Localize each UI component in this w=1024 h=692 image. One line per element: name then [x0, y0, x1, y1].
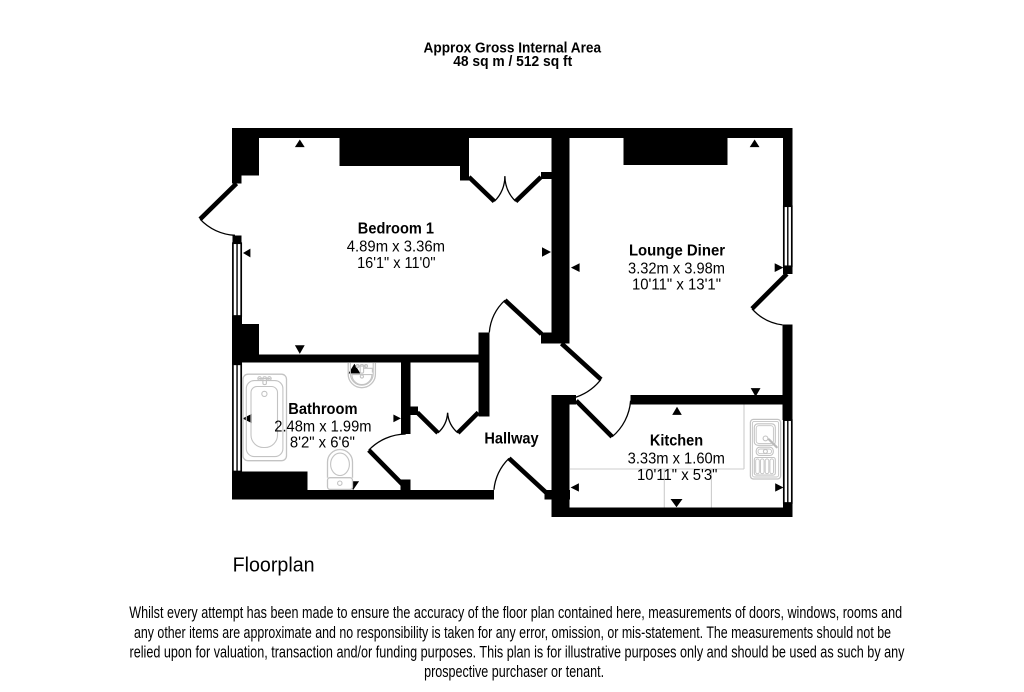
svg-text:Bedroom 1: Bedroom 1: [358, 220, 435, 237]
svg-text:prospective purchaser or tenan: prospective purchaser or tenant.: [424, 663, 604, 681]
svg-text:Floorplan: Floorplan: [233, 554, 315, 577]
svg-text:2.48m x 1.99m: 2.48m x 1.99m: [274, 418, 371, 435]
svg-text:any other items are approximat: any other items are approximate and no r…: [134, 624, 891, 642]
svg-text:relied upon for valuation, tra: relied upon for valuation, transaction a…: [130, 644, 906, 662]
svg-text:10'11" x 13'1": 10'11" x 13'1": [632, 277, 721, 294]
svg-text:16'1" x 11'0": 16'1" x 11'0": [357, 255, 435, 272]
svg-text:Lounge Diner: Lounge Diner: [629, 243, 725, 260]
svg-text:4.89m x 3.36m: 4.89m x 3.36m: [347, 239, 445, 256]
svg-text:Whilst every attempt has been: Whilst every attempt has been made to en…: [129, 604, 902, 622]
svg-text:Bathroom: Bathroom: [288, 401, 357, 418]
svg-text:48 sq m / 512 sq ft: 48 sq m / 512 sq ft: [453, 53, 572, 70]
svg-text:10'11" x 5'3": 10'11" x 5'3": [637, 467, 717, 484]
svg-text:8'2" x 6'6": 8'2" x 6'6": [290, 434, 355, 451]
svg-text:Hallway: Hallway: [484, 430, 539, 447]
svg-text:3.32m x 3.98m: 3.32m x 3.98m: [628, 261, 725, 278]
svg-text:Kitchen: Kitchen: [650, 433, 703, 450]
svg-text:3.33m x 1.60m: 3.33m x 1.60m: [628, 451, 725, 468]
